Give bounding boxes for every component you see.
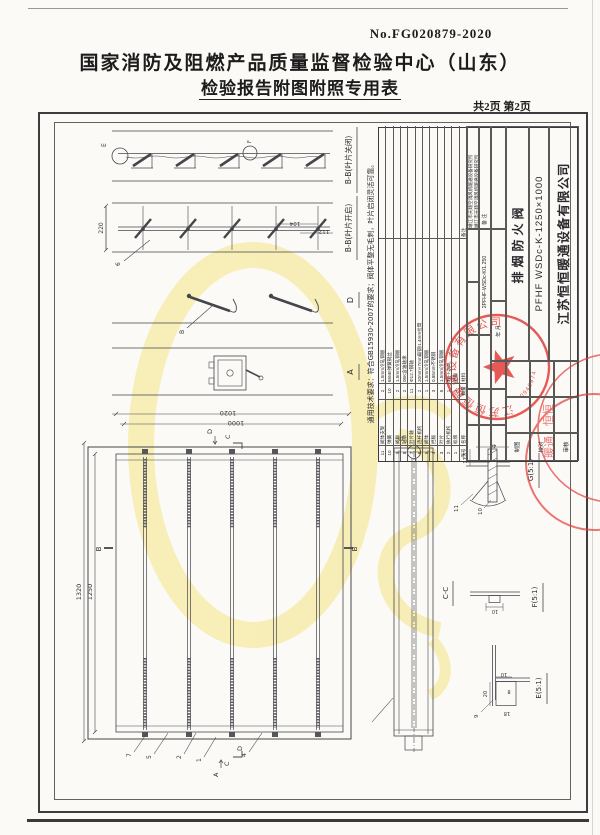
view-bb-closed: E F	[101, 131, 333, 181]
bom-row: 8轴承205K含油轴承	[401, 126, 408, 461]
bom-row: 11阀体支架21.5mm冷轧钢板	[379, 126, 386, 461]
tb-small-cell	[467, 425, 479, 461]
bom-row: 9阀板21.5mm冷轧钢板	[394, 126, 401, 461]
callout-6: 6	[115, 262, 122, 266]
detail-label-e: E(5:1)	[535, 677, 543, 698]
callout-f: F	[247, 140, 253, 143]
section-mark-d-bottom: D	[236, 746, 244, 751]
tb-small-cell	[491, 389, 506, 425]
dim-f-10: 10	[492, 608, 498, 614]
section-mark-d-top: D	[206, 429, 214, 434]
tb-small-cell	[506, 397, 530, 433]
dim-112: 112	[319, 228, 330, 234]
tb-small-cell	[467, 389, 479, 425]
tb-small-cell	[530, 361, 554, 397]
tb-small-cell	[491, 229, 506, 301]
title-block: 11阀体支架21.5mm冷轧钢板 10弹簧1065Mn弹簧钢丝 9阀板21.5m…	[378, 127, 578, 462]
view-d: B	[112, 294, 333, 334]
tb-small-cell	[554, 397, 579, 433]
dim-1020: 1020	[220, 409, 237, 417]
dim-1250: 1250	[86, 584, 94, 601]
tb-small-cell	[554, 361, 579, 397]
date-cell: 年 月	[491, 301, 506, 361]
dim-220: 220	[98, 222, 105, 234]
bom-row: 6连杆机构220mm×7mm扁钢/1.4mm拉臂	[416, 126, 423, 461]
product-name-cell: 排烟防火阀	[506, 126, 529, 361]
section-mark-b-right: B	[351, 546, 359, 551]
callout-2: 2	[176, 755, 183, 759]
section-mark-a: A	[212, 772, 220, 777]
tb-small-cell	[506, 361, 530, 397]
section-cc: G	[372, 436, 433, 752]
product-spec-cell: PFHF WSDc-K-1250×1000	[529, 126, 549, 361]
view-label-bb-open: B-B(叶片开启)	[343, 204, 353, 253]
view-label-cc: C-C	[442, 587, 450, 599]
callout-e: E	[101, 143, 108, 147]
general-note: 通用技术要求：符合GB15930-2007的要求；阀体平整无毛刺，叶片启闭灵活可…	[366, 161, 375, 424]
draft-label-cell: 制图	[506, 433, 530, 461]
callout-7: 7	[126, 753, 133, 757]
view-label-bb-closed: B-B(叶片关闭)	[343, 136, 353, 185]
tb-small-cell	[467, 282, 479, 335]
bom-row: 4挡板30.85mm不锈钢	[430, 126, 437, 461]
scanned-report-page: No.FG020879-2020 国家消防及阻燃产品质量监督检验中心（山东） 检…	[0, 0, 600, 835]
dim-1000: 1000	[228, 419, 245, 427]
callout-5: 5	[146, 755, 153, 759]
section-mark-b-left: B	[95, 546, 103, 551]
remark-label-cell: 备 注	[479, 126, 491, 229]
view-label-d: D	[346, 297, 355, 303]
scan-edge-bottom	[27, 819, 589, 822]
tb-small-cell	[467, 335, 479, 389]
dim-e-18: 18	[504, 710, 510, 716]
detail-e: 10 8 20 18 9	[474, 645, 530, 718]
bom-row: 5阀体11.5mm冷轧钢板	[423, 126, 430, 461]
bom-table: 11阀体支架21.5mm冷轧钢板 10弹簧1065Mn弹簧钢丝 9阀板21.5m…	[379, 126, 467, 461]
callout-b: B	[179, 330, 186, 334]
bom-row: 7叶片轴11Φ12.7钢轴	[408, 126, 415, 461]
callout-11: 11	[454, 505, 460, 512]
tb-small-cell	[491, 425, 506, 461]
tb-small-cell	[530, 397, 554, 433]
dim-e-20: 20	[483, 691, 489, 697]
design-institute-cell: 靖江市天翔空调风机暖通设备研究所 靖江市天翔空调风机暖通设备研究所	[467, 126, 479, 229]
dim-1320: 1320	[75, 584, 83, 601]
bom-header-row: 序号名称数量材料备注	[460, 126, 467, 461]
section-mark-c-top: C	[224, 434, 232, 439]
bom-row: 2执行机构1TD-I-280	[445, 126, 452, 461]
detail-label-f: F(5:1)	[531, 586, 539, 607]
tb-small-cell	[479, 425, 491, 461]
callout-1: 1	[196, 758, 203, 762]
main-view: 1020 1000 1320 1250	[75, 409, 359, 777]
callout-10: 10	[478, 508, 484, 515]
callout-9: 9	[474, 714, 480, 718]
dim-e-10: 10	[501, 671, 507, 677]
company-name-cell: 江苏恒恒暖通设备有限公司	[549, 126, 579, 361]
detail-f: 10	[470, 592, 520, 614]
bom-row: 3叶片51.5mm冷轧钢板	[438, 126, 445, 461]
bom-row: 10弹簧1065Mn弹簧钢丝	[386, 126, 393, 461]
tb-small-cell	[479, 389, 491, 425]
bom-row: 1标牌1铝板	[452, 126, 459, 461]
view-label-a: A	[346, 369, 355, 375]
dim-104: 104	[289, 220, 300, 226]
drawing-number-cell: 2PFHF-WSDc-K/1.250	[479, 229, 491, 335]
tb-small-cell	[479, 335, 491, 389]
tb-small-cell	[467, 229, 479, 282]
section-mark-c-bottom: C	[223, 761, 231, 766]
approve-label-cell: 审核	[554, 433, 579, 461]
dim-e-8: 8	[507, 688, 510, 694]
check-label-cell: 校对	[530, 433, 554, 461]
tb-small-cell	[491, 361, 506, 389]
tb-small-cell	[491, 126, 506, 229]
